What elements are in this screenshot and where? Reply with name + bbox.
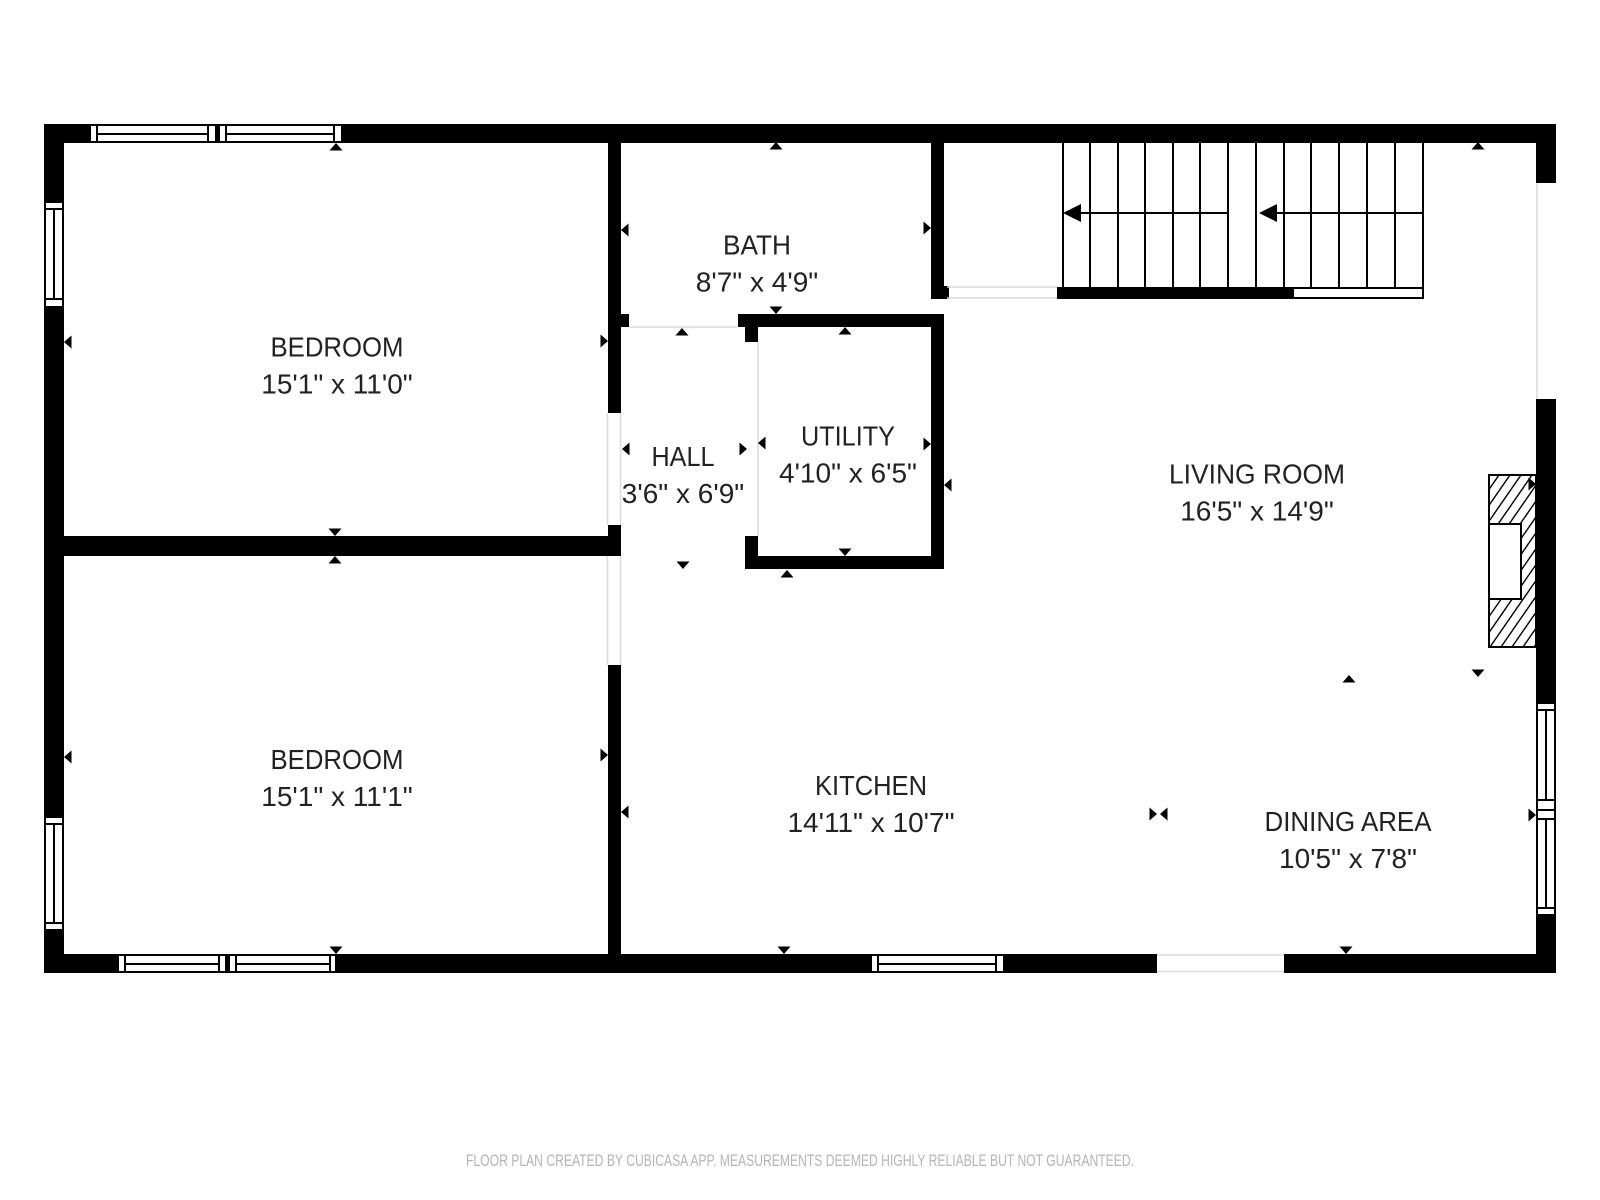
svg-text:3'6" x 6'9": 3'6" x 6'9" [622, 478, 744, 509]
svg-text:BEDROOM: BEDROOM [271, 332, 404, 363]
svg-text:BATH: BATH [723, 230, 791, 261]
svg-text:10'5" x 7'8": 10'5" x 7'8" [1279, 843, 1417, 874]
svg-text:8'7" x 4'9": 8'7" x 4'9" [696, 267, 818, 298]
svg-text:BEDROOM: BEDROOM [271, 744, 404, 775]
svg-text:HALL: HALL [652, 441, 715, 472]
svg-text:15'1" x 11'0": 15'1" x 11'0" [261, 369, 412, 400]
svg-text:LIVING ROOM: LIVING ROOM [1169, 459, 1345, 490]
svg-text:4'10" x 6'5": 4'10" x 6'5" [779, 458, 917, 489]
svg-text:15'1" x 11'1": 15'1" x 11'1" [261, 781, 412, 812]
svg-text:UTILITY: UTILITY [801, 421, 895, 452]
svg-text:14'11" x 10'7": 14'11" x 10'7" [787, 807, 954, 838]
svg-text:FLOOR PLAN CREATED BY CUBICASA: FLOOR PLAN CREATED BY CUBICASA APP. MEAS… [466, 1152, 1134, 1170]
svg-text:KITCHEN: KITCHEN [815, 770, 927, 801]
svg-text:16'5" x 14'9": 16'5" x 14'9" [1180, 496, 1334, 527]
svg-text:DINING AREA: DINING AREA [1265, 806, 1432, 837]
